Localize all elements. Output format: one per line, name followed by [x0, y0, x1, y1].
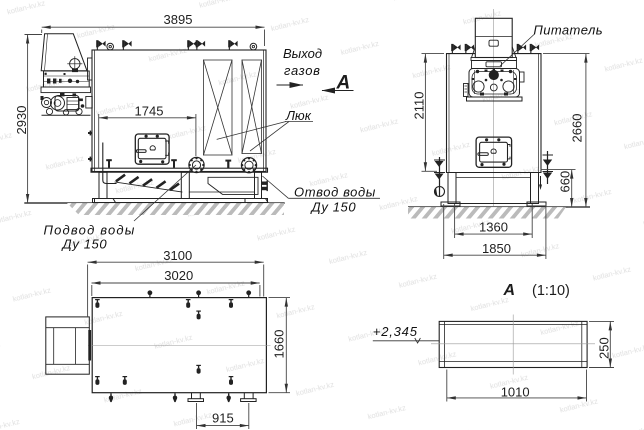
svg-text:А: А: [503, 282, 516, 299]
svg-text:915: 915: [212, 411, 234, 426]
svg-text:1660: 1660: [272, 330, 287, 359]
svg-text:Ду 150: Ду 150: [310, 199, 357, 214]
svg-text:Люк: Люк: [285, 108, 312, 123]
svg-text:2930: 2930: [14, 106, 29, 135]
svg-text:3100: 3100: [163, 248, 192, 263]
svg-text:(1:10): (1:10): [532, 283, 570, 299]
svg-text:1010: 1010: [501, 384, 530, 399]
svg-text:250: 250: [597, 337, 612, 359]
svg-text:Питатель: Питатель: [533, 23, 603, 38]
svg-text:Выход: Выход: [283, 46, 322, 61]
svg-text:2660: 2660: [570, 114, 585, 143]
svg-text:1745: 1745: [135, 103, 164, 118]
svg-text:660: 660: [558, 171, 573, 193]
svg-text:газов: газов: [284, 63, 321, 78]
svg-text:Отвод воды: Отвод воды: [294, 184, 376, 199]
svg-text:+2,345: +2,345: [373, 324, 418, 339]
svg-text:3895: 3895: [164, 12, 193, 27]
svg-text:Ду 150: Ду 150: [61, 237, 108, 252]
svg-text:3020: 3020: [164, 268, 193, 283]
svg-text:2110: 2110: [412, 92, 427, 120]
svg-text:1360: 1360: [479, 219, 508, 234]
svg-text:Подвод воды: Подвод воды: [44, 223, 136, 238]
svg-text:1850: 1850: [482, 241, 511, 256]
